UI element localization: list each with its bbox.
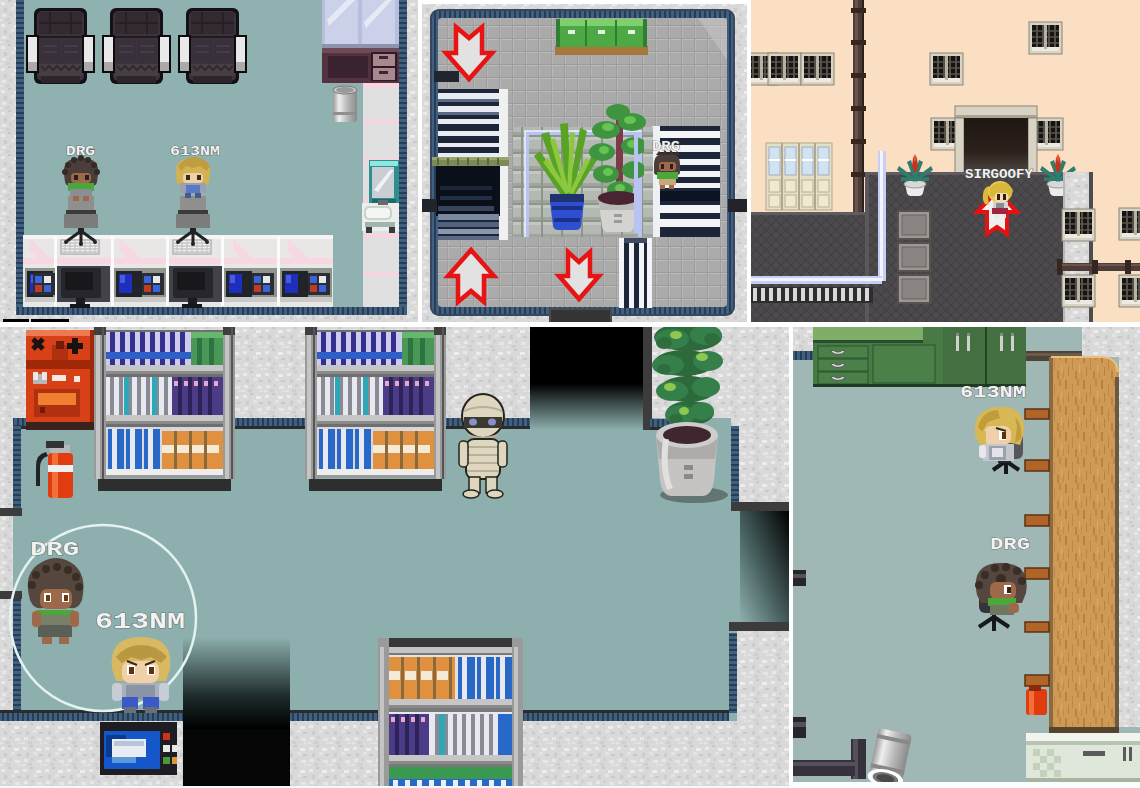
svg-text:DRG: DRG (66, 144, 95, 159)
svg-text:613NM: 613NM (960, 383, 1026, 402)
svg-text:SIRGOOFY: SIRGOOFY (965, 168, 1034, 182)
svg-text:DRG: DRG (652, 140, 680, 154)
svg-text:613NM: 613NM (95, 610, 185, 635)
svg-text:DRG: DRG (30, 538, 79, 561)
svg-text:DRG: DRG (990, 535, 1030, 554)
svg-text:613NM: 613NM (170, 144, 220, 159)
